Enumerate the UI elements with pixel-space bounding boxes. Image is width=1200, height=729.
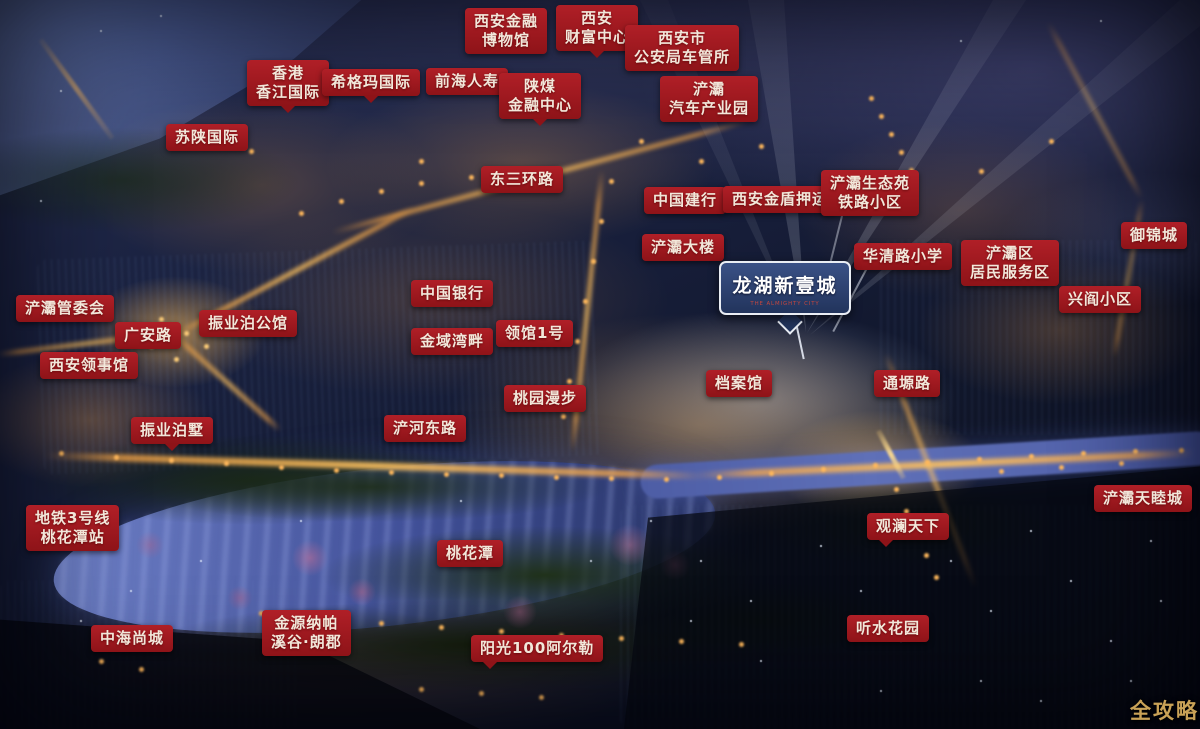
map-label-guangan-road: 广安路 bbox=[115, 322, 181, 349]
map-label-layer: 西安金融博物馆西安财富中心西安市公安局车管所香港香江国际希格玛国际前海人寿陕煤金… bbox=[0, 0, 1200, 729]
project-sign-title: 龙湖新壹城 bbox=[725, 271, 845, 298]
map-label-xian-financial-museum: 西安金融博物馆 bbox=[465, 8, 547, 54]
map-label-archives-hall: 档案馆 bbox=[706, 370, 772, 397]
map-label-ccb-bank: 中国建行 bbox=[644, 187, 726, 214]
map-label-yujin-city: 御锦城 bbox=[1121, 222, 1187, 249]
map-label-chanba-admin-committee: 浐灞管委会 bbox=[16, 295, 114, 322]
map-label-tingshui-garden: 听水花园 bbox=[847, 615, 929, 642]
map-label-zhonghai-shangcheng: 中海尚城 bbox=[91, 625, 173, 652]
map-label-zhenye-bo-mansion: 振业泊公馆 bbox=[199, 310, 297, 337]
map-label-taoyuan-stroll: 桃园漫步 bbox=[504, 385, 586, 412]
map-label-hk-xiangjiang-intl: 香港香江国际 bbox=[247, 60, 329, 106]
map-label-tongyuan-road: 通塬路 bbox=[874, 370, 940, 397]
map-label-qianhai-life: 前海人寿 bbox=[426, 68, 508, 95]
map-label-chanba-resident-service-district: 浐灞区居民服务区 bbox=[961, 240, 1059, 286]
night-city-aerial-map: 西安金融博物馆西安财富中心西安市公安局车管所香港香江国际希格玛国际前海人寿陕煤金… bbox=[0, 0, 1200, 729]
map-label-metro-line3-taohuatan-station: 地铁3号线桃花潭站 bbox=[26, 505, 119, 551]
map-label-chanhe-east-road: 浐河东路 bbox=[384, 415, 466, 442]
map-label-psb-vehicle-office: 西安市公安局车管所 bbox=[625, 25, 739, 71]
map-label-xingyan-community: 兴阎小区 bbox=[1059, 286, 1141, 313]
project-sign: 龙湖新壹城 THE ALMIGHTY CITY bbox=[719, 261, 851, 315]
map-label-huaqing-road-primary-school: 华清路小学 bbox=[854, 243, 952, 270]
map-label-shaanmei-finance-center: 陕煤金融中心 bbox=[499, 73, 581, 119]
map-label-taohuatan-lake: 桃花潭 bbox=[437, 540, 503, 567]
map-label-sunshine-100-arles: 阳光100阿尔勒 bbox=[471, 635, 603, 662]
map-label-chanba-tower: 浐灞大楼 bbox=[642, 234, 724, 261]
map-label-bank-of-china: 中国银行 bbox=[411, 280, 493, 307]
map-label-chanba-tianmucheng: 浐灞天睦城 bbox=[1094, 485, 1192, 512]
map-label-east-3rd-ring-road: 东三环路 bbox=[481, 166, 563, 193]
project-sign-subtitle: THE ALMIGHTY CITY bbox=[731, 300, 839, 306]
map-label-chanba-eco-garden-railway-community: 浐灞生态苑铁路小区 bbox=[821, 170, 919, 216]
map-label-jinyuan-napa-valley: 金源纳帕溪谷·朗郡 bbox=[262, 610, 351, 656]
map-label-xian-consulate: 西安领事馆 bbox=[40, 352, 138, 379]
map-label-guanlan-tianxia: 观澜天下 bbox=[867, 513, 949, 540]
map-label-sigma-intl: 希格玛国际 bbox=[322, 69, 420, 96]
map-label-sushaan-intl: 苏陕国际 bbox=[166, 124, 248, 151]
map-label-chanba-auto-industry-park: 浐灞汽车产业园 bbox=[660, 76, 758, 122]
watermark-text: 全攻略 bbox=[1130, 695, 1199, 725]
map-label-jinyu-bay: 金域湾畔 bbox=[411, 328, 493, 355]
project-sign-box: 龙湖新壹城 THE ALMIGHTY CITY bbox=[719, 261, 851, 315]
map-label-lingguan-no1: 领馆1号 bbox=[496, 320, 573, 347]
map-label-zhenye-bo-villa: 振业泊墅 bbox=[131, 417, 213, 444]
map-label-xian-jindun-escort: 西安金盾押运 bbox=[723, 186, 837, 213]
